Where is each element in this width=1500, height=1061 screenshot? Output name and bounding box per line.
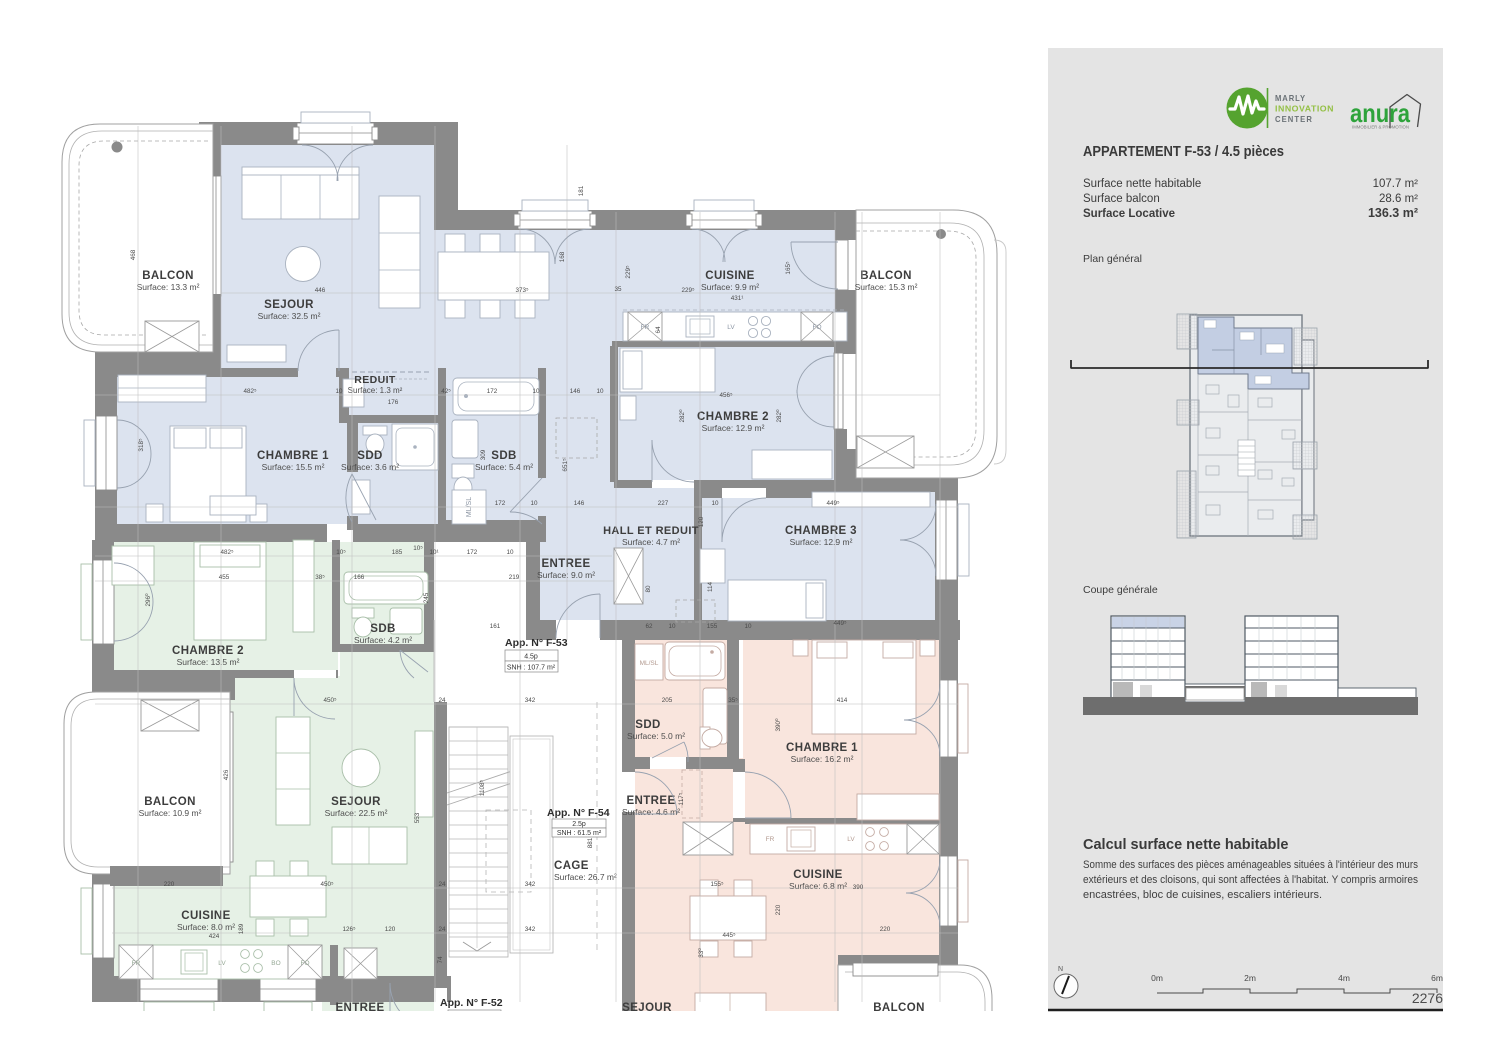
svg-text:BALCON: BALCON: [860, 270, 912, 282]
svg-text:INNOVATION: INNOVATION: [1275, 104, 1334, 114]
svg-text:FR: FR: [766, 836, 775, 843]
svg-text:Surface: 22.5 m²: Surface: 22.5 m²: [325, 808, 388, 818]
svg-text:342: 342: [525, 697, 536, 704]
svg-text:Surface: 9.0 m²: Surface: 9.0 m²: [537, 570, 595, 580]
svg-text:282⁰: 282⁰: [776, 409, 783, 423]
svg-text:28.6 m²: 28.6 m²: [1379, 193, 1418, 205]
svg-text:445⁵: 445⁵: [722, 932, 736, 939]
svg-text:HALL ET REDUIT: HALL ET REDUIT: [603, 525, 699, 537]
svg-text:BALCON: BALCON: [142, 270, 194, 282]
svg-text:APPARTEMENT F-53 / 4.5 pièces: APPARTEMENT F-53 / 4.5 pièces: [1083, 144, 1284, 160]
svg-text:155: 155: [707, 623, 718, 630]
svg-text:Surface: 13.5 m²: Surface: 13.5 m²: [177, 657, 240, 667]
svg-text:CAGE: CAGE: [554, 860, 589, 872]
svg-text:172: 172: [467, 549, 478, 556]
svg-text:10: 10: [532, 388, 540, 395]
svg-text:Surface: 8.0 m²: Surface: 8.0 m²: [177, 922, 235, 932]
svg-text:881: 881: [587, 837, 594, 848]
svg-text:450⁵: 450⁵: [323, 697, 337, 704]
svg-text:424: 424: [209, 933, 220, 940]
svg-text:10: 10: [668, 623, 676, 630]
svg-text:Surface: 5.4 m²: Surface: 5.4 m²: [475, 462, 533, 472]
svg-text:Surface: 4.2 m²: Surface: 4.2 m²: [354, 635, 412, 645]
svg-text:CENTER: CENTER: [1275, 114, 1313, 124]
svg-text:BO: BO: [271, 960, 280, 967]
svg-text:SDB: SDB: [491, 450, 516, 462]
svg-text:CHAMBRE 2: CHAMBRE 2: [697, 411, 769, 423]
svg-text:Surface: 12.9 m²: Surface: 12.9 m²: [702, 423, 765, 433]
svg-text:136.3 m²: 136.3 m²: [1368, 206, 1418, 220]
svg-text:encastrées, bloc de cuisines,: encastrées, bloc de cuisines, escaliers …: [1083, 889, 1322, 901]
svg-text:24: 24: [438, 926, 446, 933]
svg-text:390⁰: 390⁰: [775, 718, 782, 732]
svg-text:Surface: 26.7 m²: Surface: 26.7 m²: [554, 872, 617, 882]
svg-text:10: 10: [506, 549, 514, 556]
svg-text:38⁵: 38⁵: [315, 574, 325, 581]
svg-text:245: 245: [423, 592, 430, 603]
svg-text:FO: FO: [812, 324, 821, 331]
svg-text:Surface: 16.2 m²: Surface: 16.2 m²: [791, 754, 854, 764]
svg-text:Somme des surfaces des pièces: Somme des surfaces des pièces aménageabl…: [1083, 859, 1418, 871]
svg-text:220: 220: [880, 926, 891, 933]
svg-text:4m: 4m: [1338, 973, 1350, 983]
svg-text:ENTREE: ENTREE: [626, 795, 675, 807]
svg-text:172: 172: [487, 388, 498, 395]
svg-text:LV: LV: [847, 836, 855, 843]
svg-text:ENTREE: ENTREE: [541, 558, 590, 570]
svg-text:107.7 m²: 107.7 m²: [1373, 178, 1419, 190]
svg-text:10: 10: [596, 388, 604, 395]
svg-text:CUISINE: CUISINE: [181, 910, 230, 922]
svg-text:414: 414: [837, 697, 848, 704]
svg-text:App. N° F-54: App. N° F-54: [547, 807, 610, 819]
svg-text:24: 24: [438, 881, 446, 888]
svg-text:0m: 0m: [1151, 973, 1163, 983]
svg-text:Surface: 13.3 m²: Surface: 13.3 m²: [137, 282, 200, 292]
svg-text:342: 342: [525, 926, 536, 933]
svg-text:SEJOUR: SEJOUR: [331, 796, 381, 808]
svg-text:296⁰: 296⁰: [145, 593, 152, 607]
svg-text:10: 10: [744, 623, 752, 630]
svg-text:219: 219: [509, 574, 520, 581]
svg-text:LV: LV: [218, 960, 226, 967]
svg-text:468: 468: [130, 249, 137, 260]
svg-text:120: 120: [385, 926, 396, 933]
svg-text:FR: FR: [641, 324, 650, 331]
svg-text:SNH : 61.5 m²: SNH : 61.5 m²: [557, 830, 602, 837]
svg-text:CHAMBRE 2: CHAMBRE 2: [172, 645, 244, 657]
svg-text:342: 342: [525, 881, 536, 888]
svg-text:62: 62: [645, 623, 653, 630]
svg-text:166: 166: [354, 574, 365, 581]
svg-text:Surface: 12.9 m²: Surface: 12.9 m²: [790, 537, 853, 547]
svg-text:SDB: SDB: [370, 623, 395, 635]
svg-text:Surface: 15.5 m²: Surface: 15.5 m²: [262, 462, 325, 472]
svg-text:App. N° F-53: App. N° F-53: [505, 637, 568, 649]
svg-text:35: 35: [614, 286, 622, 293]
svg-text:LV: LV: [727, 324, 735, 331]
svg-text:FO: FO: [300, 960, 309, 967]
svg-text:220: 220: [164, 881, 175, 888]
svg-text:80: 80: [645, 585, 652, 593]
svg-text:161: 161: [490, 623, 501, 630]
svg-text:6m: 6m: [1431, 973, 1443, 983]
svg-text:SDD: SDD: [635, 719, 660, 731]
svg-text:155⁵: 155⁵: [710, 881, 724, 888]
svg-text:205: 205: [662, 697, 673, 704]
svg-text:Surface: 6.8 m²: Surface: 6.8 m²: [789, 881, 847, 891]
svg-text:2276: 2276: [1412, 990, 1443, 1006]
svg-text:CHAMBRE 1: CHAMBRE 1: [257, 450, 329, 462]
svg-text:FR: FR: [132, 960, 141, 967]
svg-text:146: 146: [574, 500, 585, 507]
svg-text:449⁵: 449⁵: [833, 620, 847, 627]
svg-text:2m: 2m: [1244, 973, 1256, 983]
svg-text:35⁵: 35⁵: [728, 697, 738, 704]
svg-text:229⁵: 229⁵: [625, 265, 632, 279]
svg-text:App. N° F-52: App. N° F-52: [440, 997, 503, 1009]
svg-text:Surface: 9.9 m²: Surface: 9.9 m²: [701, 282, 759, 292]
svg-text:176: 176: [388, 399, 399, 406]
svg-text:426: 426: [223, 769, 230, 780]
svg-text:450⁵: 450⁵: [320, 881, 334, 888]
svg-text:Surface nette habitable: Surface nette habitable: [1083, 178, 1201, 190]
svg-text:Surface: 15.3 m²: Surface: 15.3 m²: [855, 282, 918, 292]
svg-text:Surface: 4.7 m²: Surface: 4.7 m²: [622, 537, 680, 547]
svg-text:168: 168: [559, 251, 566, 262]
svg-text:SDD: SDD: [357, 450, 382, 462]
svg-text:553: 553: [414, 812, 421, 823]
svg-text:Surface: 32.5 m²: Surface: 32.5 m²: [258, 311, 321, 321]
svg-text:64: 64: [655, 326, 662, 334]
svg-text:Coupe générale: Coupe générale: [1083, 584, 1158, 596]
svg-text:651⁵: 651⁵: [562, 458, 569, 472]
svg-text:2.5p: 2.5p: [572, 821, 586, 828]
svg-text:229⁵: 229⁵: [681, 287, 695, 294]
svg-text:10: 10: [335, 388, 343, 395]
svg-text:10⁵: 10⁵: [413, 545, 423, 552]
svg-text:172: 172: [495, 500, 506, 507]
svg-text:Surface Locative: Surface Locative: [1083, 208, 1175, 220]
svg-text:455: 455: [219, 574, 230, 581]
svg-text:Calcul surface nette habitable: Calcul surface nette habitable: [1083, 837, 1288, 853]
svg-text:anura: anura: [1350, 98, 1410, 128]
svg-text:431¹: 431¹: [731, 295, 744, 302]
svg-text:126⁵: 126⁵: [342, 926, 356, 933]
svg-text:Surface: 3.6 m²: Surface: 3.6 m²: [341, 462, 399, 472]
svg-text:42⁵: 42⁵: [441, 388, 451, 395]
svg-text:227: 227: [658, 500, 669, 507]
svg-text:Surface: 10.9 m²: Surface: 10.9 m²: [139, 808, 202, 818]
svg-text:Surface: 1.3 m²: Surface: 1.3 m²: [348, 386, 403, 395]
svg-text:373⁵: 373⁵: [515, 287, 529, 294]
svg-text:282⁰: 282⁰: [679, 409, 686, 423]
svg-text:Surface balcon: Surface balcon: [1083, 193, 1160, 205]
svg-text:1108⁵: 1108⁵: [479, 780, 486, 797]
svg-text:390: 390: [853, 884, 864, 891]
svg-text:185: 185: [392, 549, 403, 556]
svg-text:456⁵: 456⁵: [719, 392, 733, 399]
svg-text:Surface: 4.6 m²: Surface: 4.6 m²: [622, 807, 680, 817]
svg-text:10¹: 10¹: [429, 549, 438, 556]
svg-text:Plan général: Plan général: [1083, 253, 1142, 265]
svg-text:120: 120: [698, 516, 705, 527]
svg-text:10: 10: [530, 500, 538, 507]
svg-text:CUISINE: CUISINE: [705, 270, 754, 282]
svg-text:114: 114: [707, 581, 714, 592]
svg-text:181: 181: [578, 185, 585, 196]
svg-text:CUISINE: CUISINE: [793, 869, 842, 881]
svg-text:449⁵: 449⁵: [826, 500, 840, 507]
svg-text:220: 220: [775, 904, 782, 915]
svg-text:ML/SL: ML/SL: [640, 660, 659, 667]
svg-text:189: 189: [238, 923, 245, 934]
svg-text:482⁵: 482⁵: [220, 549, 234, 556]
svg-text:MARLY: MARLY: [1275, 93, 1306, 103]
svg-text:N: N: [1058, 966, 1063, 973]
svg-text:SNH : 107.7 m²: SNH : 107.7 m²: [507, 665, 556, 672]
svg-text:74: 74: [437, 956, 444, 964]
svg-text:117⁵: 117⁵: [678, 792, 685, 805]
svg-text:4.5p: 4.5p: [524, 654, 538, 661]
svg-text:Surface: 5.0 m²: Surface: 5.0 m²: [627, 731, 685, 741]
svg-text:33⁰: 33⁰: [698, 948, 705, 958]
svg-text:SEJOUR: SEJOUR: [264, 299, 314, 311]
svg-text:446: 446: [315, 287, 326, 294]
svg-text:24: 24: [438, 697, 446, 704]
svg-text:318⁵: 318⁵: [138, 438, 145, 452]
svg-text:BALCON: BALCON: [144, 796, 196, 808]
svg-text:IMMOBILIER & PROMOTION: IMMOBILIER & PROMOTION: [1352, 125, 1409, 130]
svg-text:CHAMBRE 3: CHAMBRE 3: [785, 525, 857, 537]
svg-text:REDUIT: REDUIT: [354, 374, 396, 386]
svg-text:CHAMBRE 1: CHAMBRE 1: [786, 742, 858, 754]
svg-text:extérieurs et des cloisons, qu: extérieurs et des cloisons, qui sont aff…: [1083, 874, 1418, 886]
svg-text:146: 146: [570, 388, 581, 395]
svg-text:309: 309: [480, 449, 487, 460]
svg-text:10⁵: 10⁵: [336, 549, 346, 556]
svg-text:165⁵: 165⁵: [785, 261, 792, 275]
svg-text:10: 10: [711, 500, 719, 507]
svg-text:482⁵: 482⁵: [243, 388, 257, 395]
